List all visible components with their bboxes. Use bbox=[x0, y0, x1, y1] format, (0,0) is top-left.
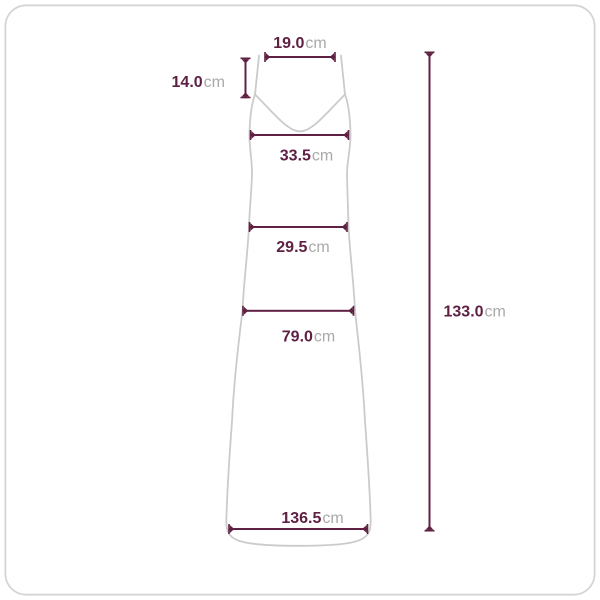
svg-text:133.0cm: 133.0cm bbox=[444, 303, 506, 320]
svg-text:29.5cm: 29.5cm bbox=[276, 239, 329, 256]
svg-text:136.5cm: 136.5cm bbox=[281, 510, 343, 527]
svg-text:79.0cm: 79.0cm bbox=[282, 329, 335, 346]
svg-text:14.0cm: 14.0cm bbox=[172, 74, 225, 91]
svg-text:33.5cm: 33.5cm bbox=[280, 148, 333, 165]
svg-text:19.0cm: 19.0cm bbox=[273, 35, 326, 52]
